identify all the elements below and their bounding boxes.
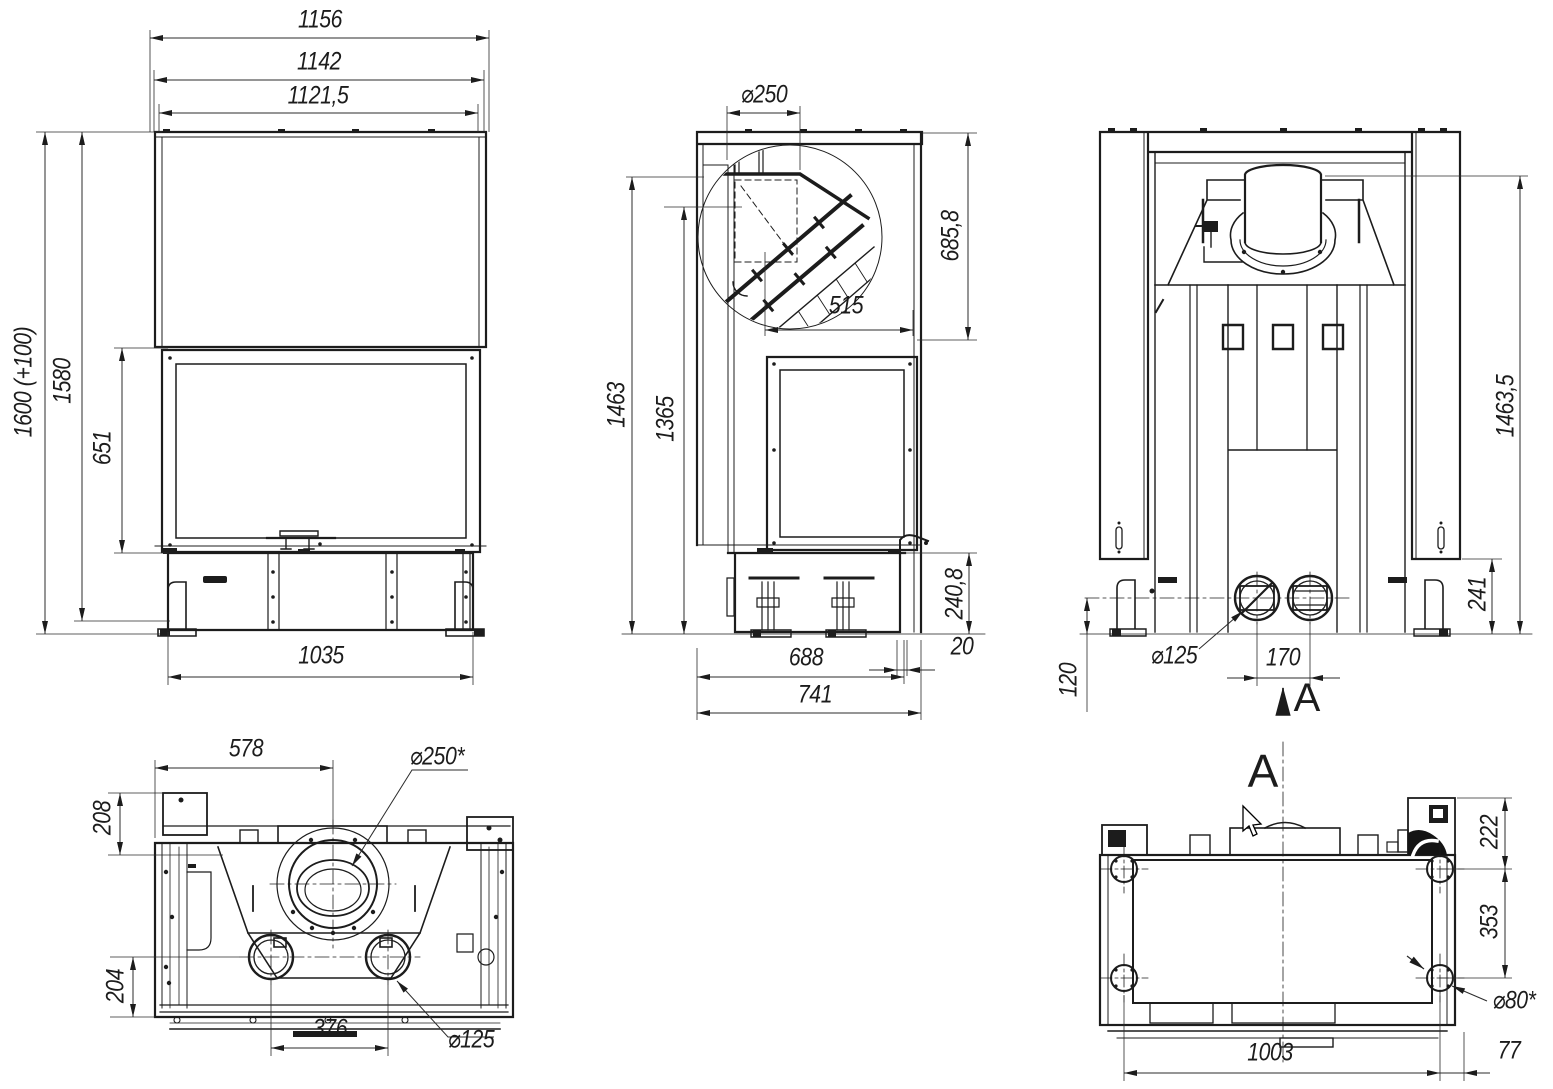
view-a-title: A (1248, 748, 1279, 794)
dim-rear-intake-spacing: 170 (1266, 646, 1300, 671)
front-view-dimensions (36, 30, 489, 685)
dim-bottom-foot-width-spacing: 1003 (1247, 1041, 1293, 1066)
rear-view-drawing (1080, 128, 1532, 636)
dim-side-depth-body: 688 (789, 646, 823, 671)
dim-top-intake-diameter: ⌀125 (448, 1028, 495, 1053)
dim-side-flue-diameter: ⌀250 (741, 83, 788, 108)
dim-side-rear-gap: 20 (951, 635, 974, 660)
side-view-drawing (622, 129, 985, 637)
dim-rear-intake-height: 120 (1057, 663, 1082, 697)
dim-bottom-foot-diameter: ⌀80* (1492, 989, 1535, 1014)
dim-bottom-foot-rear-offset: 222 (1478, 815, 1503, 849)
dim-top-rear-offset: 208 (91, 801, 116, 835)
front-view-drawing (155, 129, 486, 636)
dim-front-width-overall: 1156 (298, 8, 342, 33)
dim-front-base-width: 1035 (298, 644, 344, 669)
dim-bottom-foot-side-offset: 77 (1498, 1039, 1521, 1064)
top-view-drawing (155, 793, 513, 1037)
dim-side-height-damper: 1365 (654, 396, 679, 442)
mouse-cursor-icon (1243, 806, 1261, 836)
dim-rear-height-collar: 1463,5 (1494, 375, 1519, 437)
dim-side-plinth-height: 240,8 (943, 568, 968, 619)
dim-top-flue-diameter: ⌀250* (410, 745, 464, 770)
dim-rear-intake-diameter: ⌀125 (1151, 644, 1198, 669)
dim-bottom-foot-depth-spacing: 353 (1478, 905, 1503, 939)
dim-side-top-depth: 685,8 (939, 210, 964, 261)
technical-drawing-page: 1156 1142 1121,5 1600 (+100) 1580 651 10… (0, 0, 1553, 1089)
dim-front-height-body: 1580 (51, 358, 76, 404)
dim-side-depth-overall: 741 (798, 683, 832, 708)
dim-side-height-top: 1463 (605, 382, 630, 428)
dim-side-chamber-depth: 515 (829, 294, 863, 319)
dim-front-width-inner: 1121,5 (288, 84, 349, 109)
section-arrow-label: A (1294, 678, 1321, 718)
dim-front-width-body: 1142 (297, 50, 341, 75)
dim-top-front-offset: 204 (104, 969, 129, 1003)
dim-rear-plinth-height: 241 (1466, 577, 1491, 611)
dim-front-glass-height: 651 (91, 431, 116, 465)
dim-front-height-overall: 1600 (+100) (12, 327, 37, 438)
dim-top-intake-spacing: 376 (313, 1017, 347, 1042)
drawing-canvas (0, 0, 1553, 1089)
bottom-view-drawing (1100, 742, 1464, 1062)
dim-top-flue-offset: 578 (229, 737, 263, 762)
